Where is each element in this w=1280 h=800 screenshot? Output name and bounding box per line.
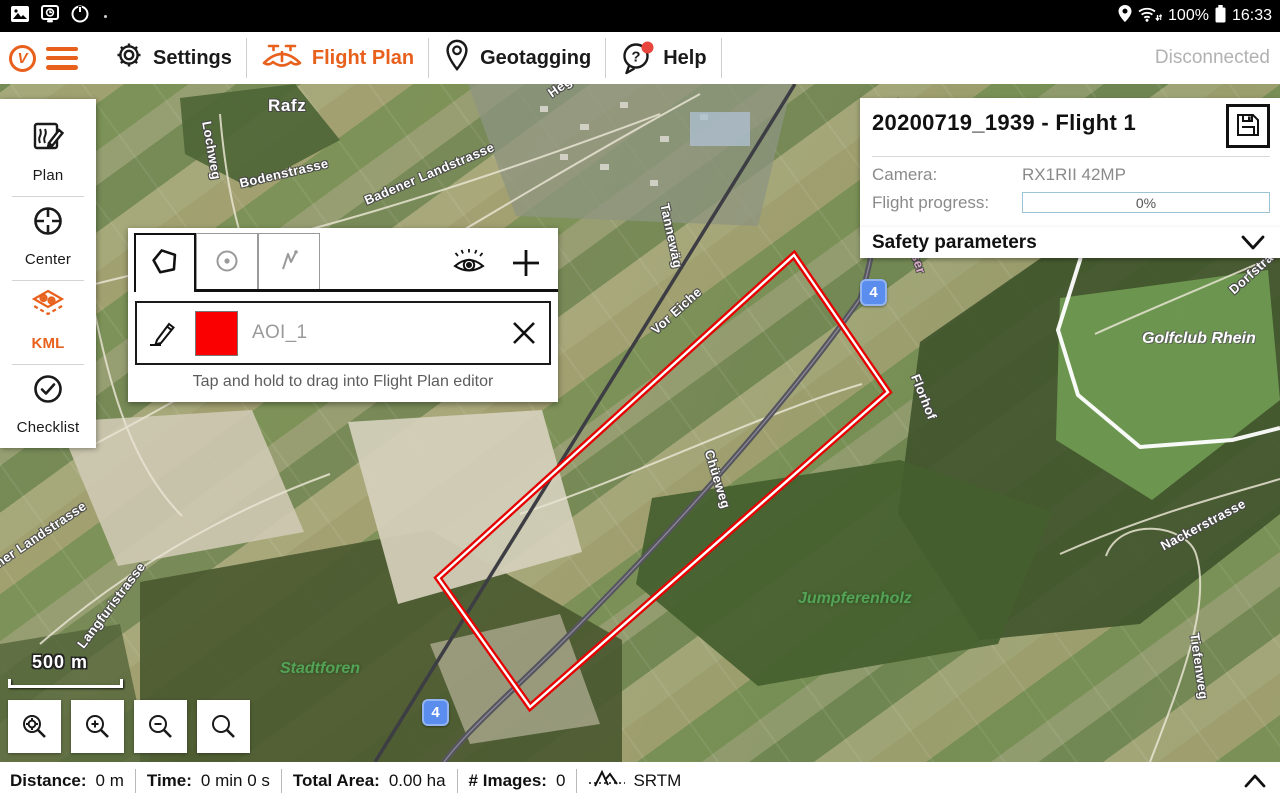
zoom-in-button[interactable] [71, 700, 124, 753]
stat-separator [576, 769, 577, 793]
tab-polygon-aoi[interactable] [134, 233, 196, 292]
zoom-out-button[interactable] [134, 700, 187, 753]
floppy-disk-icon [1234, 111, 1262, 142]
corridor-path-icon [275, 247, 303, 280]
sidebar-item-checklist[interactable]: Checklist [0, 365, 96, 448]
battery-icon [1215, 5, 1226, 28]
aoi-name-text: AOI_1 [252, 322, 307, 344]
map-label: Florhof [908, 372, 940, 422]
wifi-icon [1138, 5, 1162, 27]
sidebar-item-plan[interactable]: Plan [0, 113, 96, 196]
android-status-bar: 100% 16:33 [0, 0, 1280, 32]
bottom-stats-bar: Distance:0 m Time:0 min 0 s Total Area:0… [0, 762, 1280, 800]
map-label: Heg [545, 84, 575, 100]
camera-label: Camera: [872, 165, 1022, 185]
card-divider [872, 156, 1270, 157]
stat-separator [281, 769, 282, 793]
elevation-source-label: SRTM [633, 771, 681, 791]
check-circle-icon [30, 371, 66, 412]
map-label: Tiefenweg [1187, 632, 1211, 700]
elevation-source: SRTM [588, 768, 681, 795]
stat-total-area: Total Area:0.00 ha [293, 771, 446, 791]
aoi-color-swatch[interactable] [195, 311, 238, 356]
battery-percent-text: 100% [1168, 7, 1209, 25]
stat-distance: Distance:0 m [10, 771, 124, 791]
sidebar-item-label: Checklist [17, 419, 80, 436]
aoi-tools-panel: AOI_1 Tap and hold to drag into Flight P… [128, 228, 558, 402]
help-bubble-icon: ? [620, 41, 654, 75]
flight-plan-card: 20200719_1939 - Flight 1 Camera: RX1RII … [860, 98, 1280, 230]
kml-layers-icon [30, 287, 66, 328]
add-aoi-plus-icon[interactable] [510, 247, 542, 279]
clock-text: 16:33 [1232, 7, 1272, 25]
svg-text:?: ? [632, 49, 641, 66]
sidebar-item-label: Center [25, 251, 71, 268]
map-label: Langfuristrasse [74, 559, 148, 651]
notification-dot [104, 15, 107, 18]
map-label: Nackerstrasse [1158, 496, 1248, 553]
flight-progress-label: Flight progress: [872, 193, 1022, 213]
menu-item-geotagging[interactable]: Geotagging [429, 32, 605, 84]
menu-item-label: Help [663, 47, 706, 70]
flight-progress-value: 0% [1136, 195, 1156, 211]
map-label: ener Landstrasse [0, 498, 89, 574]
screenshot-notification-icon [10, 4, 30, 29]
safety-parameters-label: Safety parameters [872, 232, 1037, 254]
search-button[interactable] [197, 700, 250, 753]
collapse-bar-button[interactable] [1242, 771, 1268, 791]
stat-separator [457, 769, 458, 793]
drone-icon [261, 39, 303, 77]
hamburger-menu-button[interactable] [46, 47, 78, 70]
menu-item-label: Geotagging [480, 47, 591, 70]
menu-item-flight-plan[interactable]: Flight Plan [247, 32, 428, 84]
highway-shield: 4 [860, 279, 887, 306]
wingtra-logo: V [9, 45, 36, 72]
save-button[interactable] [1226, 104, 1270, 148]
stat-separator [135, 769, 136, 793]
map-label: Vor Eiche [648, 284, 705, 337]
crosshair-icon [30, 203, 66, 244]
sidebar-item-label: Plan [33, 167, 64, 184]
edit-pencil-icon[interactable] [147, 316, 181, 350]
safety-parameters-bar[interactable]: Safety parameters [860, 227, 1280, 258]
menu-item-label: Flight Plan [312, 47, 414, 70]
circle-dot-icon [213, 247, 241, 280]
tab-corridor-aoi[interactable] [258, 233, 320, 292]
chevron-up-icon [1242, 771, 1268, 791]
aoi-list-item[interactable]: AOI_1 [135, 301, 551, 365]
close-icon[interactable] [509, 318, 539, 348]
toolbar-separator [721, 38, 722, 78]
connection-status: Disconnected [1155, 47, 1270, 69]
flight-plan-title: 20200719_1939 - Flight 1 [872, 104, 1136, 136]
camera-value: RX1RII 42MP [1022, 165, 1126, 185]
map-label: Rafz [268, 96, 306, 116]
stat-time: Time:0 min 0 s [147, 771, 270, 791]
map-label: Stadtforen [280, 660, 360, 678]
chevron-down-icon [1238, 233, 1268, 253]
wingtra-app-screen: 100% 16:33 V Settings Flight Plan [0, 0, 1280, 800]
map-label: Tannewäg [657, 202, 685, 269]
map-label: Jumpferenholz [798, 590, 912, 608]
tab-circle-aoi[interactable] [196, 233, 258, 292]
gear-icon [114, 40, 144, 76]
app-toolbar: V Settings Flight Plan Geotagging ? [0, 32, 1280, 84]
sidebar-item-label: KML [31, 335, 64, 352]
location-icon [1118, 5, 1132, 27]
flight-progress-bar: 0% [1022, 192, 1270, 213]
stat-image-count: # Images:0 [469, 771, 566, 791]
map-scale-label: 500 m [32, 652, 88, 673]
terrain-icon [588, 768, 626, 795]
sidebar-item-kml[interactable]: KML [0, 281, 96, 364]
menu-item-settings[interactable]: Settings [100, 32, 246, 84]
sidebar-item-center[interactable]: Center [0, 197, 96, 280]
map-pin-icon [443, 39, 471, 77]
tab-underline [196, 289, 558, 292]
smart-view-icon [40, 4, 60, 29]
map-label: Bodenstrasse [238, 156, 330, 191]
power-saving-icon [70, 4, 90, 29]
aoi-tab-row [128, 228, 558, 292]
map-label: Badener Landstrasse [362, 139, 497, 207]
highway-shield: 4 [422, 699, 449, 726]
zoom-to-fit-button[interactable] [8, 700, 61, 753]
map-label: Golfclub Rhein [1142, 330, 1256, 348]
left-sidebar: Plan Center KML Checklist [0, 99, 96, 448]
map-scale-bar [8, 679, 123, 688]
map-label: Chüeweg [702, 448, 734, 510]
aoi-drag-hint: Tap and hold to drag into Flight Plan ed… [128, 365, 558, 402]
pentagon-icon [150, 246, 180, 281]
menu-item-label: Settings [153, 47, 232, 70]
plan-icon [30, 119, 66, 160]
visibility-eye-icon[interactable] [450, 247, 488, 279]
menu-item-help[interactable]: ? Help [606, 32, 720, 84]
map-label: Lochweg [199, 120, 224, 181]
